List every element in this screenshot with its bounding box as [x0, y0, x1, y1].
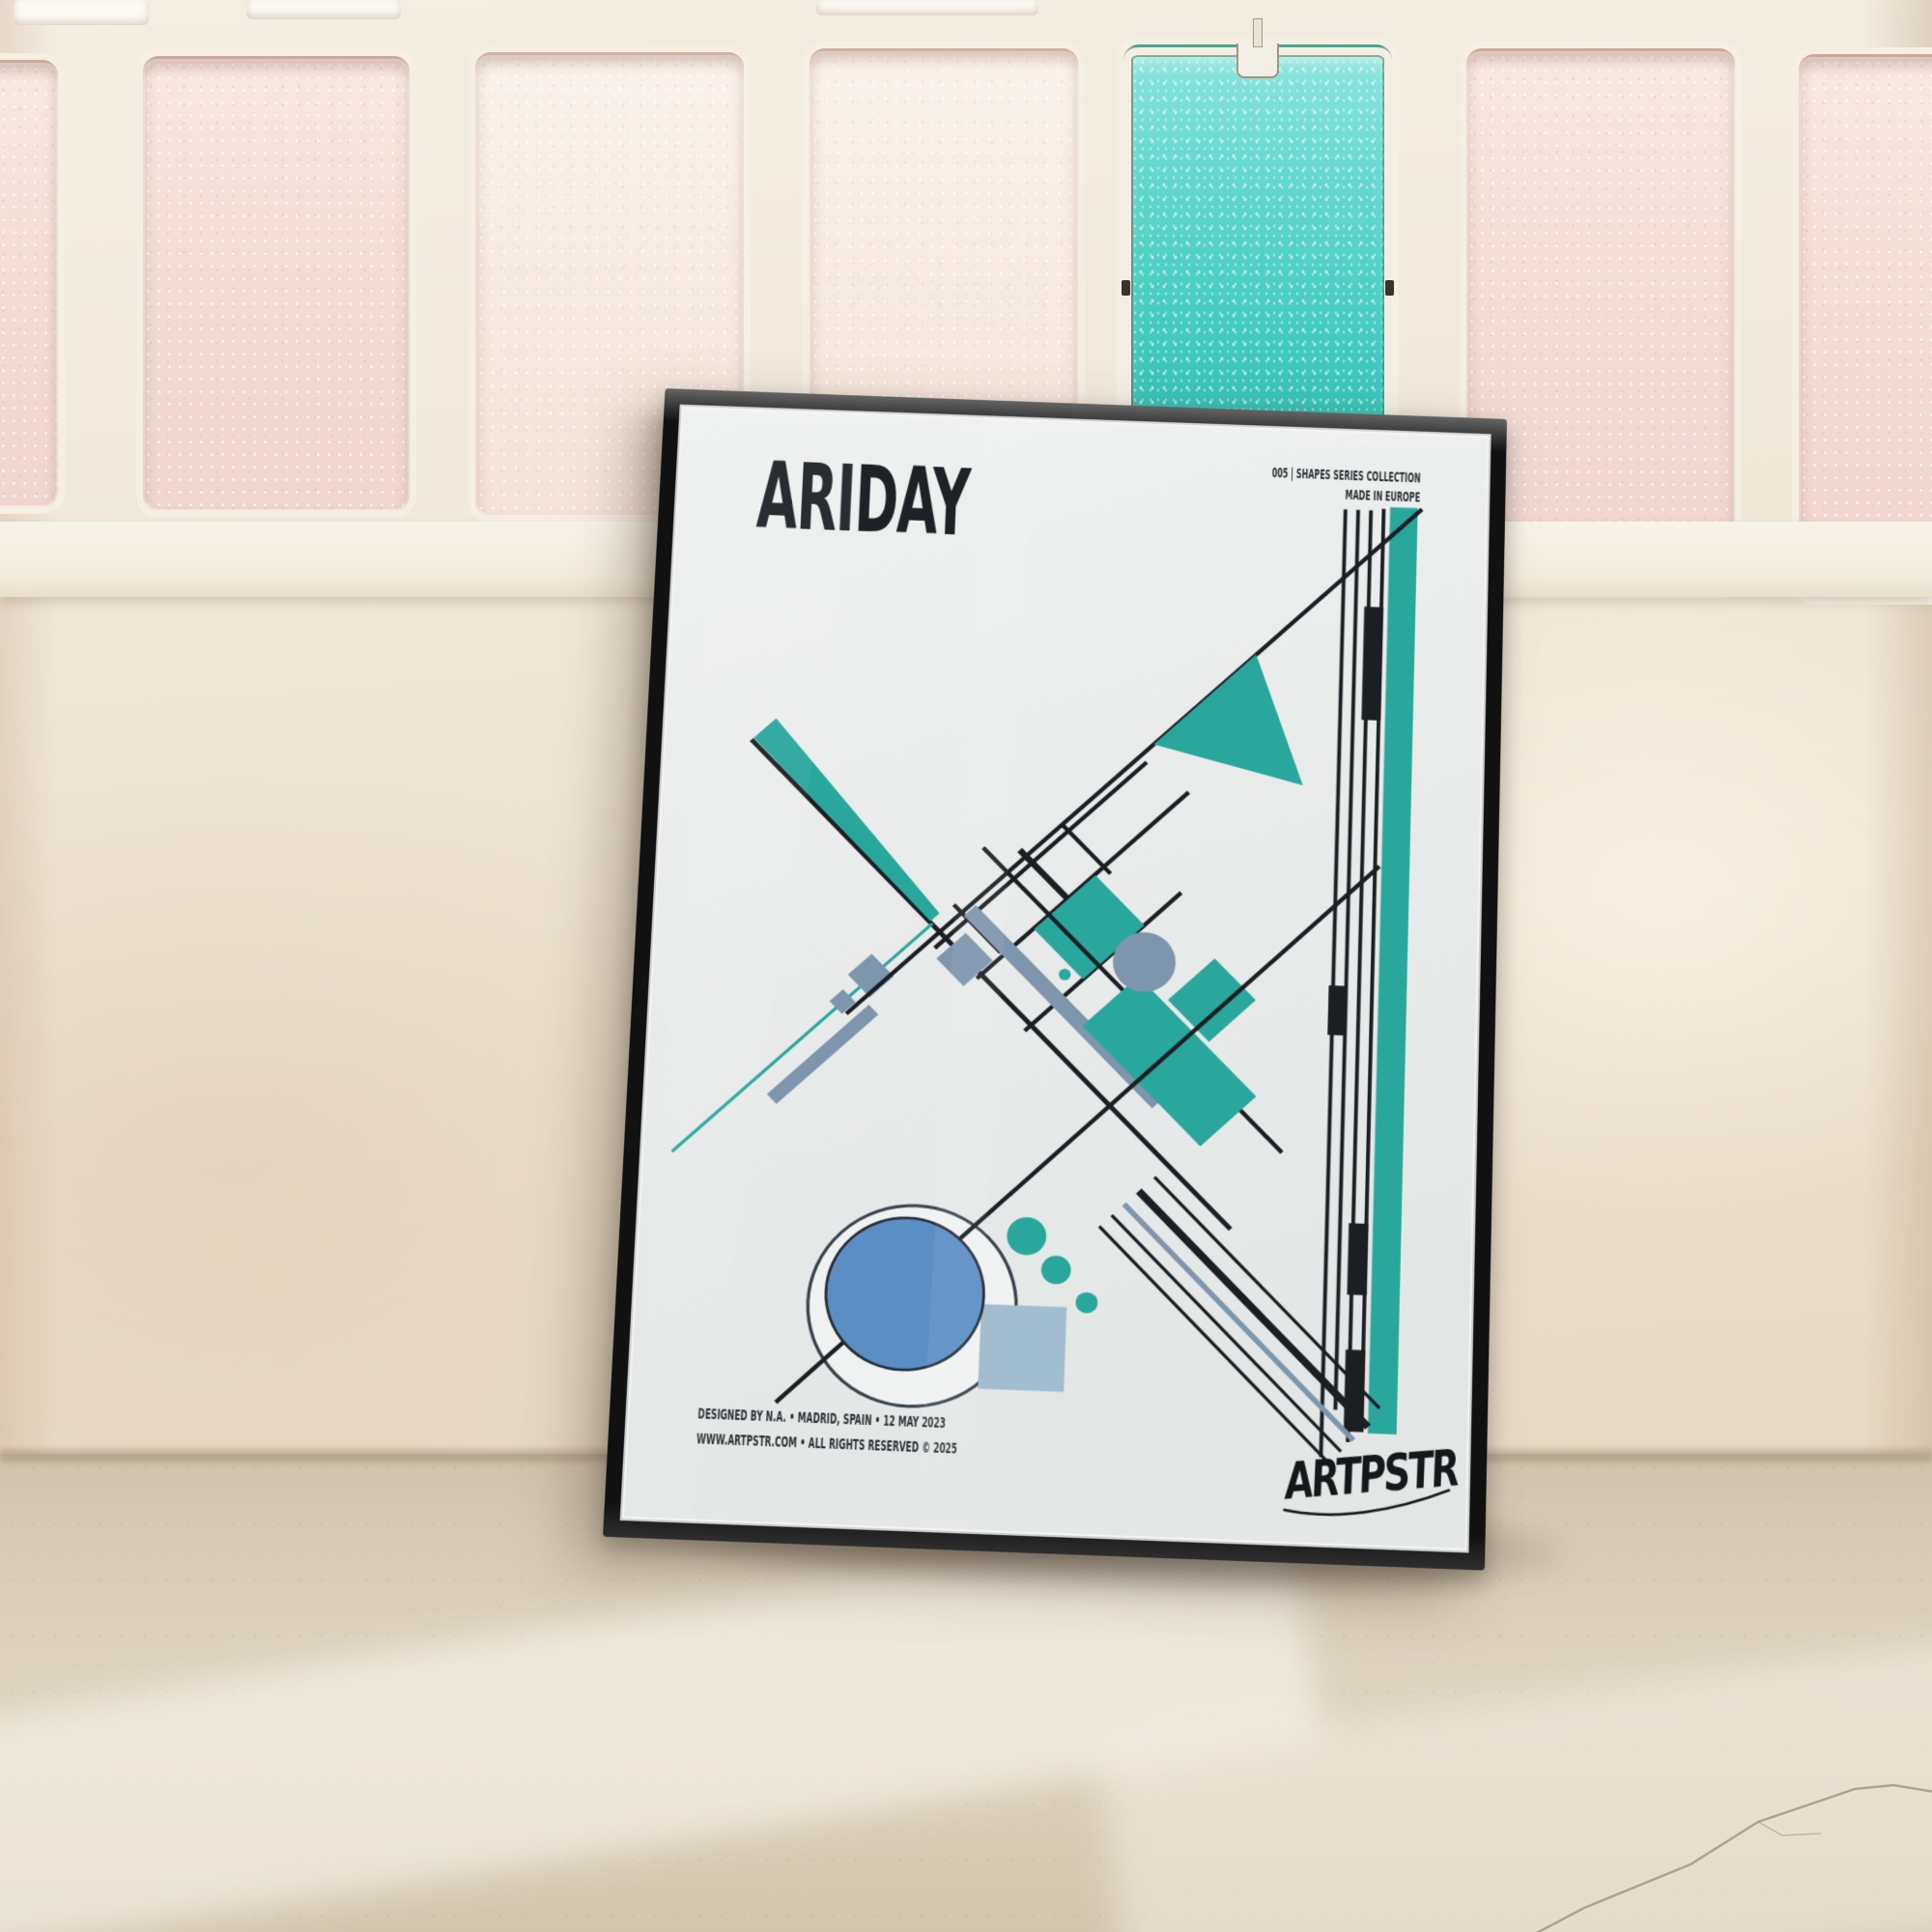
- window-sliver: [816, 0, 1038, 15]
- window-latch-icon: [1236, 43, 1279, 78]
- window-sliver: [246, 0, 401, 19]
- light-blue-square: [978, 1304, 1066, 1392]
- edition-line2: MADE IN EUROPE: [1345, 487, 1420, 506]
- window-pane-pink: [1466, 48, 1735, 592]
- window-pane-pink: [143, 56, 410, 511]
- window-pane-pink: [0, 60, 58, 507]
- poster-artwork: ARIDAY 005 | SHAPES SERIES COLLECTION MA…: [624, 409, 1488, 1548]
- poster-frame: ARIDAY 005 | SHAPES SERIES COLLECTION MA…: [603, 388, 1507, 1571]
- poster-paper: ARIDAY 005 | SHAPES SERIES COLLECTION MA…: [620, 405, 1492, 1553]
- scene: ARIDAY 005 | SHAPES SERIES COLLECTION MA…: [0, 0, 1932, 1932]
- window-hinge-icon: [1122, 280, 1130, 296]
- window-hinge-icon: [1385, 280, 1394, 296]
- floor-crack: [1439, 1729, 1932, 1932]
- window-sliver: [14, 0, 149, 25]
- window-pane-pink: [1799, 54, 1932, 598]
